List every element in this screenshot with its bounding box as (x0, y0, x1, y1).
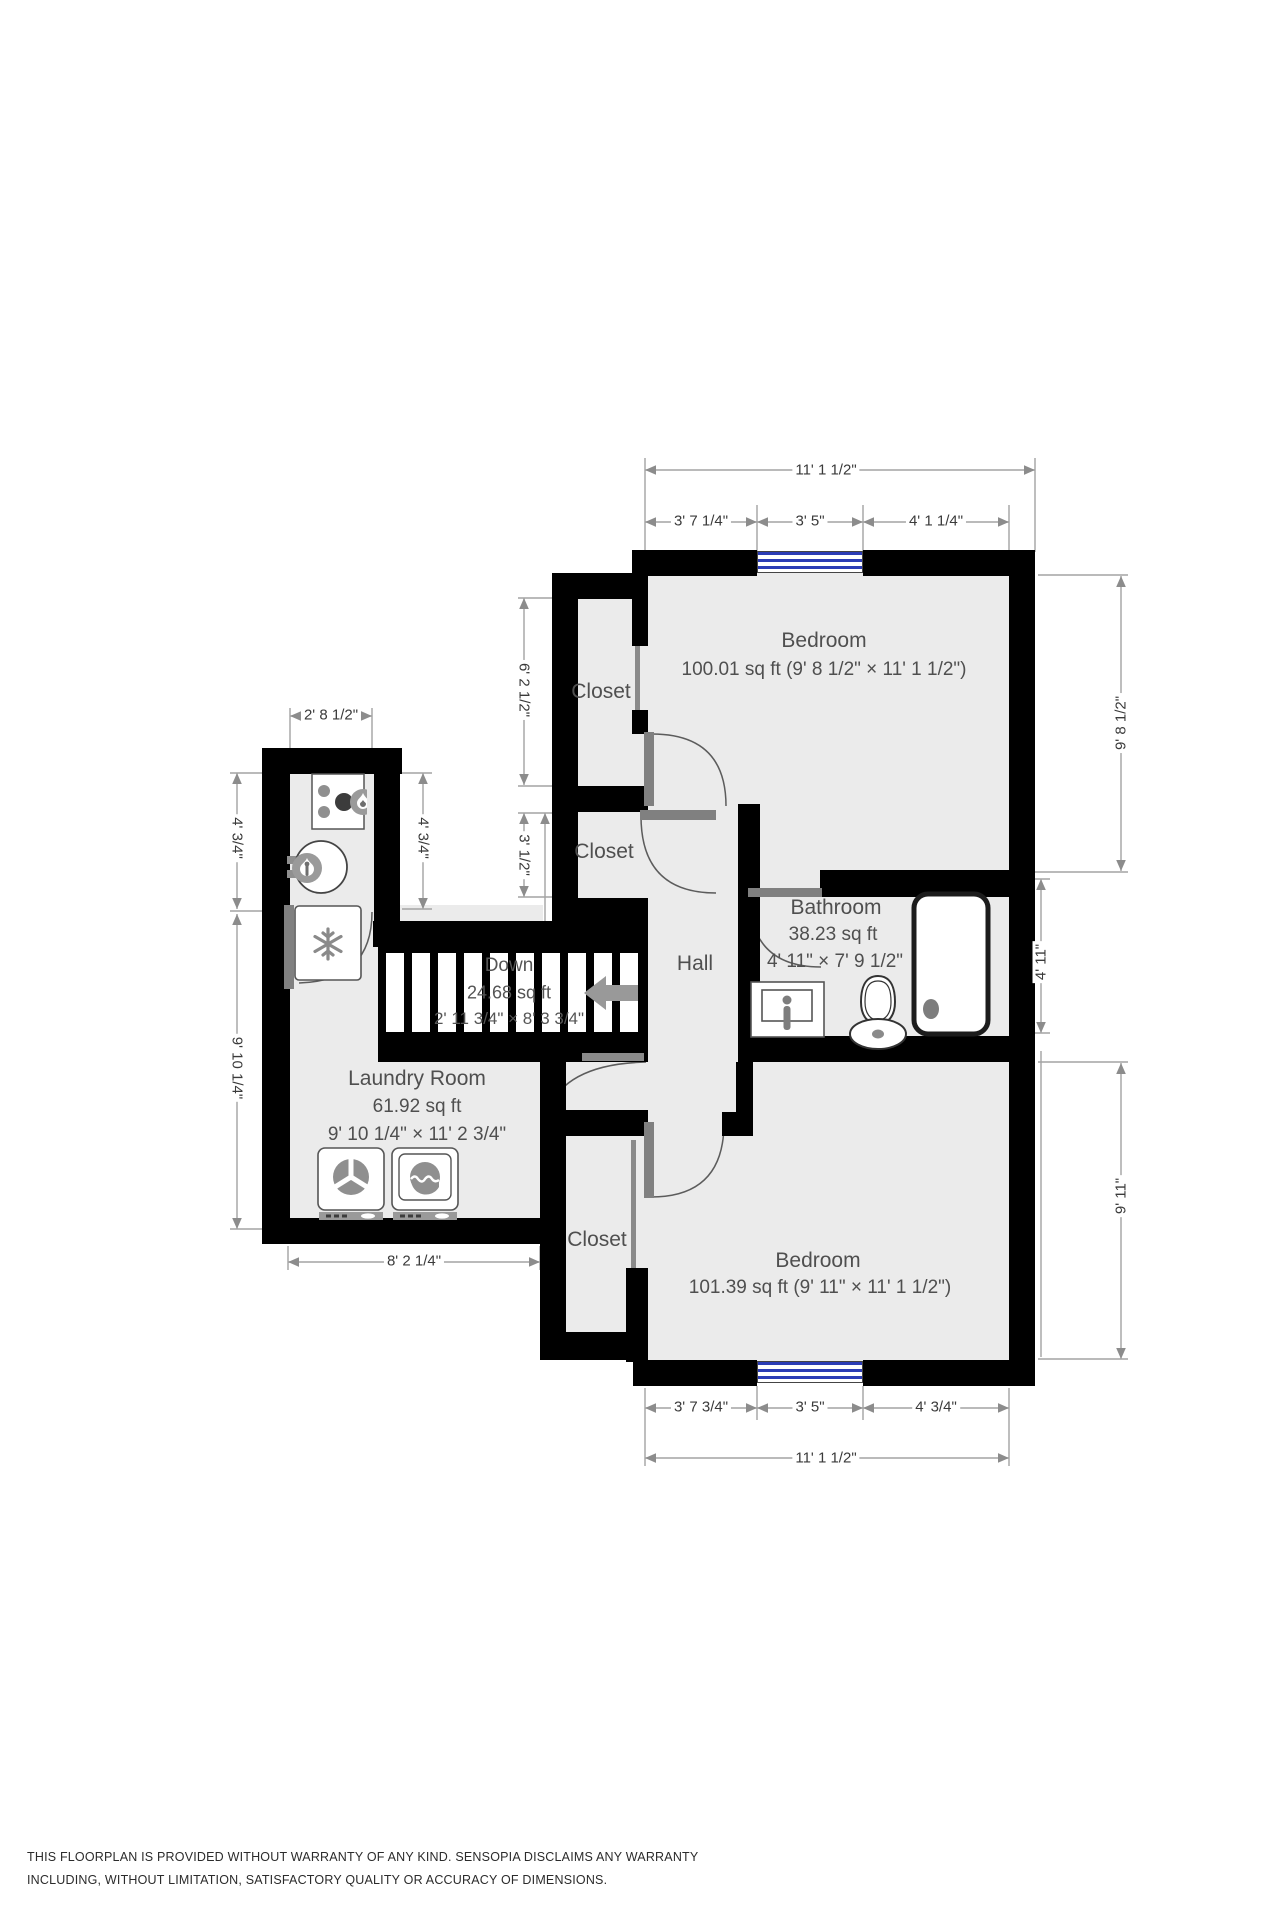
floorplan-canvas: Bedroom 100.01 sq ft (9' 8 1/2" × 11' 1 … (0, 0, 1280, 1920)
dryer-drum-icon (390, 1146, 462, 1224)
wall (540, 1110, 648, 1136)
closet1-label: Closet (571, 680, 631, 704)
dim-bottom-total: 11' 1 1/2" (792, 1450, 859, 1467)
wall (540, 1332, 648, 1360)
wall (633, 1360, 757, 1386)
hall-label: Hall (677, 952, 713, 976)
wall (552, 786, 648, 812)
dim-laundry-bottom: 8' 2 1/4" (384, 1253, 444, 1270)
wall (552, 573, 578, 923)
wall (632, 550, 648, 646)
washer-drum-icon (316, 1146, 388, 1224)
closet2-label: Closet (574, 840, 634, 864)
wall (540, 1062, 566, 1358)
laundry-dims: 9' 10 1/4" × 11' 2 3/4" (328, 1124, 506, 1146)
dim-right-upper: 9' 8 1/2" (1113, 693, 1130, 753)
dim-right-mid: 4' 11" (1033, 941, 1050, 983)
bathroom-label: Bathroom (790, 896, 881, 920)
closet3-door-line (631, 1140, 636, 1268)
window-top (757, 551, 863, 573)
laundry-area: 61.92 sq ft (373, 1096, 462, 1118)
dim-top-total: 11' 1 1/2" (792, 462, 859, 479)
dim-closet2-height: 3' 1/2" (516, 831, 533, 879)
window-bottom (757, 1361, 863, 1383)
dim-laundry-left: 9' 10 1/4" (229, 1034, 246, 1102)
water-heater-flame-icon (287, 838, 349, 896)
bathroom-dims: 4' 11" × 7' 9 1/2" (767, 951, 903, 973)
stove-icon (311, 773, 367, 831)
dim-bottom-seg1: 3' 7 3/4" (671, 1399, 731, 1416)
wall (1009, 550, 1035, 1386)
dim-bottom-seg3: 4' 3/4" (912, 1399, 960, 1416)
wall (722, 1112, 753, 1136)
stairs-area: 24.68 sq ft (467, 983, 551, 1004)
stairs-label: Down (485, 955, 534, 977)
bedroom1-door-panel (644, 732, 654, 806)
closet3-label: Closet (567, 1228, 627, 1252)
stairs-direction-arrow-icon (584, 976, 640, 1010)
laundry-label: Laundry Room (348, 1067, 486, 1091)
dim-closet1-height: 6' 2 1/2" (516, 660, 533, 720)
bedroom2-door-panel (644, 1122, 654, 1198)
wall (633, 550, 757, 576)
disclaimer-line1: THIS FLOORPLAN IS PROVIDED WITHOUT WARRA… (27, 1846, 707, 1869)
wall (863, 1360, 1035, 1386)
wall (632, 710, 648, 734)
dim-nook-right: 4' 3/4" (415, 814, 432, 862)
dim-bottom-seg2: 3' 5" (792, 1399, 827, 1416)
disclaimer-line2: INCLUDING, WITHOUT LIMITATION, SATISFACT… (27, 1869, 707, 1892)
dim-nook-left: 4' 3/4" (229, 814, 246, 862)
wall (736, 1062, 753, 1114)
stair-bottom-strip (582, 1053, 644, 1061)
bedroom1-label: Bedroom (781, 629, 866, 653)
stairs-dims: 2' 11 3/4" × 8' 3 3/4" (434, 1009, 584, 1029)
bedroom2-label: Bedroom (775, 1249, 860, 1273)
dim-nook-top: 2' 8 1/2" (301, 707, 361, 724)
dim-top-seg3: 4' 1 1/4" (906, 513, 966, 530)
bedroom1-area: 100.01 sq ft (9' 8 1/2" × 11' 1 1/2") (682, 659, 967, 681)
wall (373, 921, 648, 947)
disclaimer-text: THIS FLOORPLAN IS PROVIDED WITHOUT WARRA… (27, 1846, 707, 1891)
dim-right-lower: 9' 11" (1113, 1175, 1130, 1217)
dim-top-seg1: 3' 7 1/4" (671, 513, 731, 530)
wall (262, 748, 290, 1244)
bathtub-icon (911, 891, 991, 1037)
wall (374, 772, 400, 923)
toilet-icon (848, 974, 908, 1052)
bedroom2-area: 101.39 sq ft (9' 11" × 11' 1 1/2") (689, 1277, 951, 1299)
sink-faucet-icon (750, 981, 826, 1039)
bathroom-area: 38.23 sq ft (789, 924, 878, 946)
closet1-door-line (635, 646, 640, 710)
snowflake-icon (293, 904, 365, 986)
dim-top-seg2: 3' 5" (792, 513, 827, 530)
closet2-door-panel (640, 810, 716, 820)
